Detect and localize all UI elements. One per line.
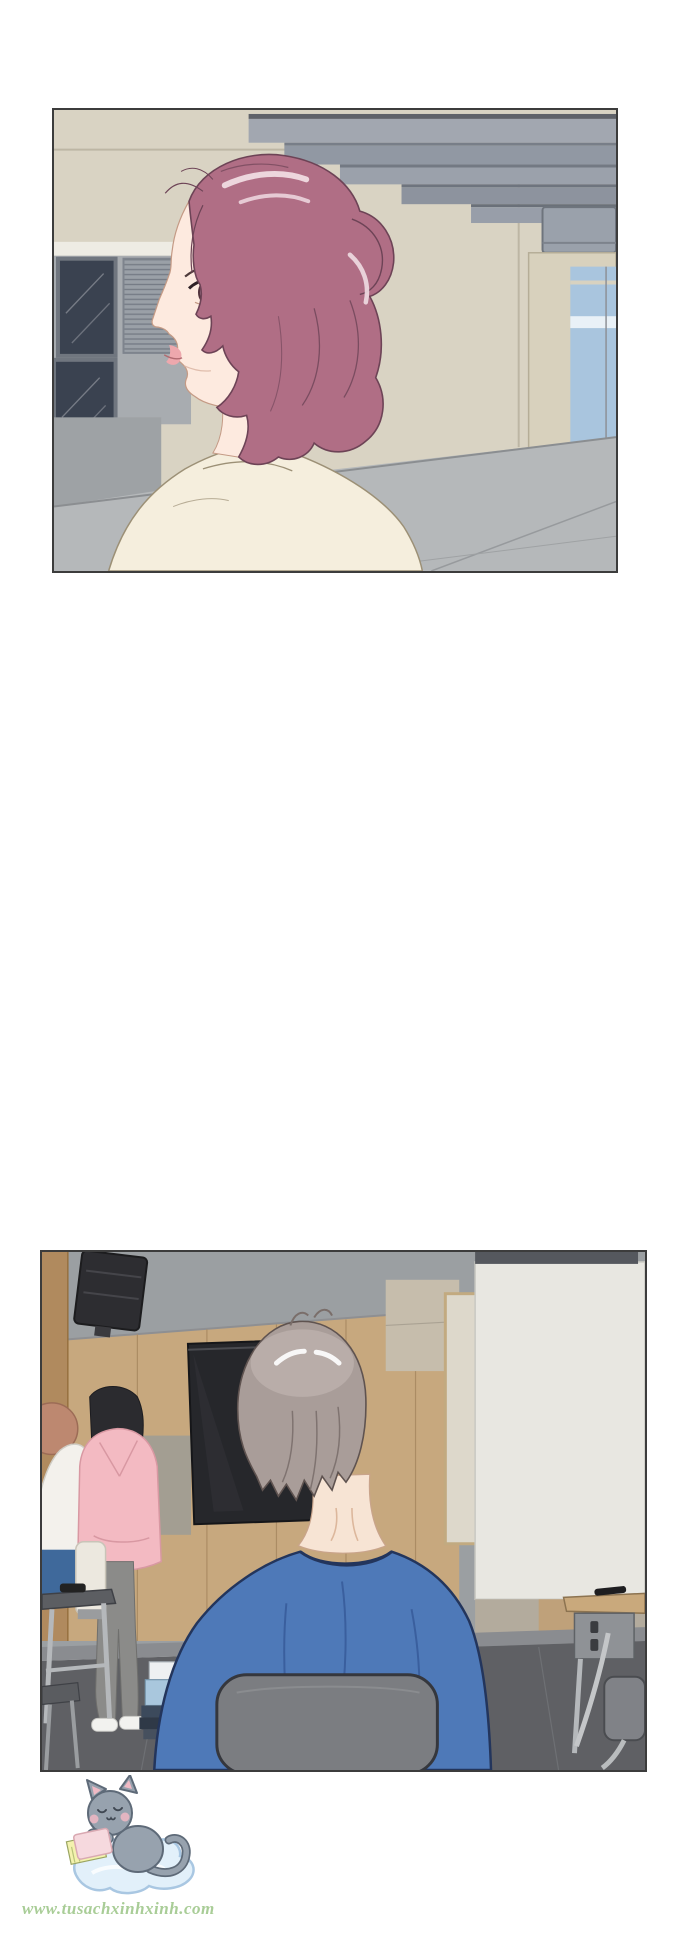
panel-2-illustration [42,1252,645,1770]
air-purifier [76,1542,106,1619]
projection-screen [475,1252,645,1637]
webtoon-page: www.tusachxinhxinh.com [0,0,690,1935]
cat-mascot [52,1775,208,1897]
chair-back [217,1675,438,1770]
comic-panel-1 [52,108,618,573]
comic-panel-2 [40,1250,647,1772]
panel-1-illustration [54,110,616,571]
window-left-top [58,259,116,356]
whiteboard [445,1294,479,1544]
watermark-url: www.tusachxinhxinh.com [22,1896,252,1922]
